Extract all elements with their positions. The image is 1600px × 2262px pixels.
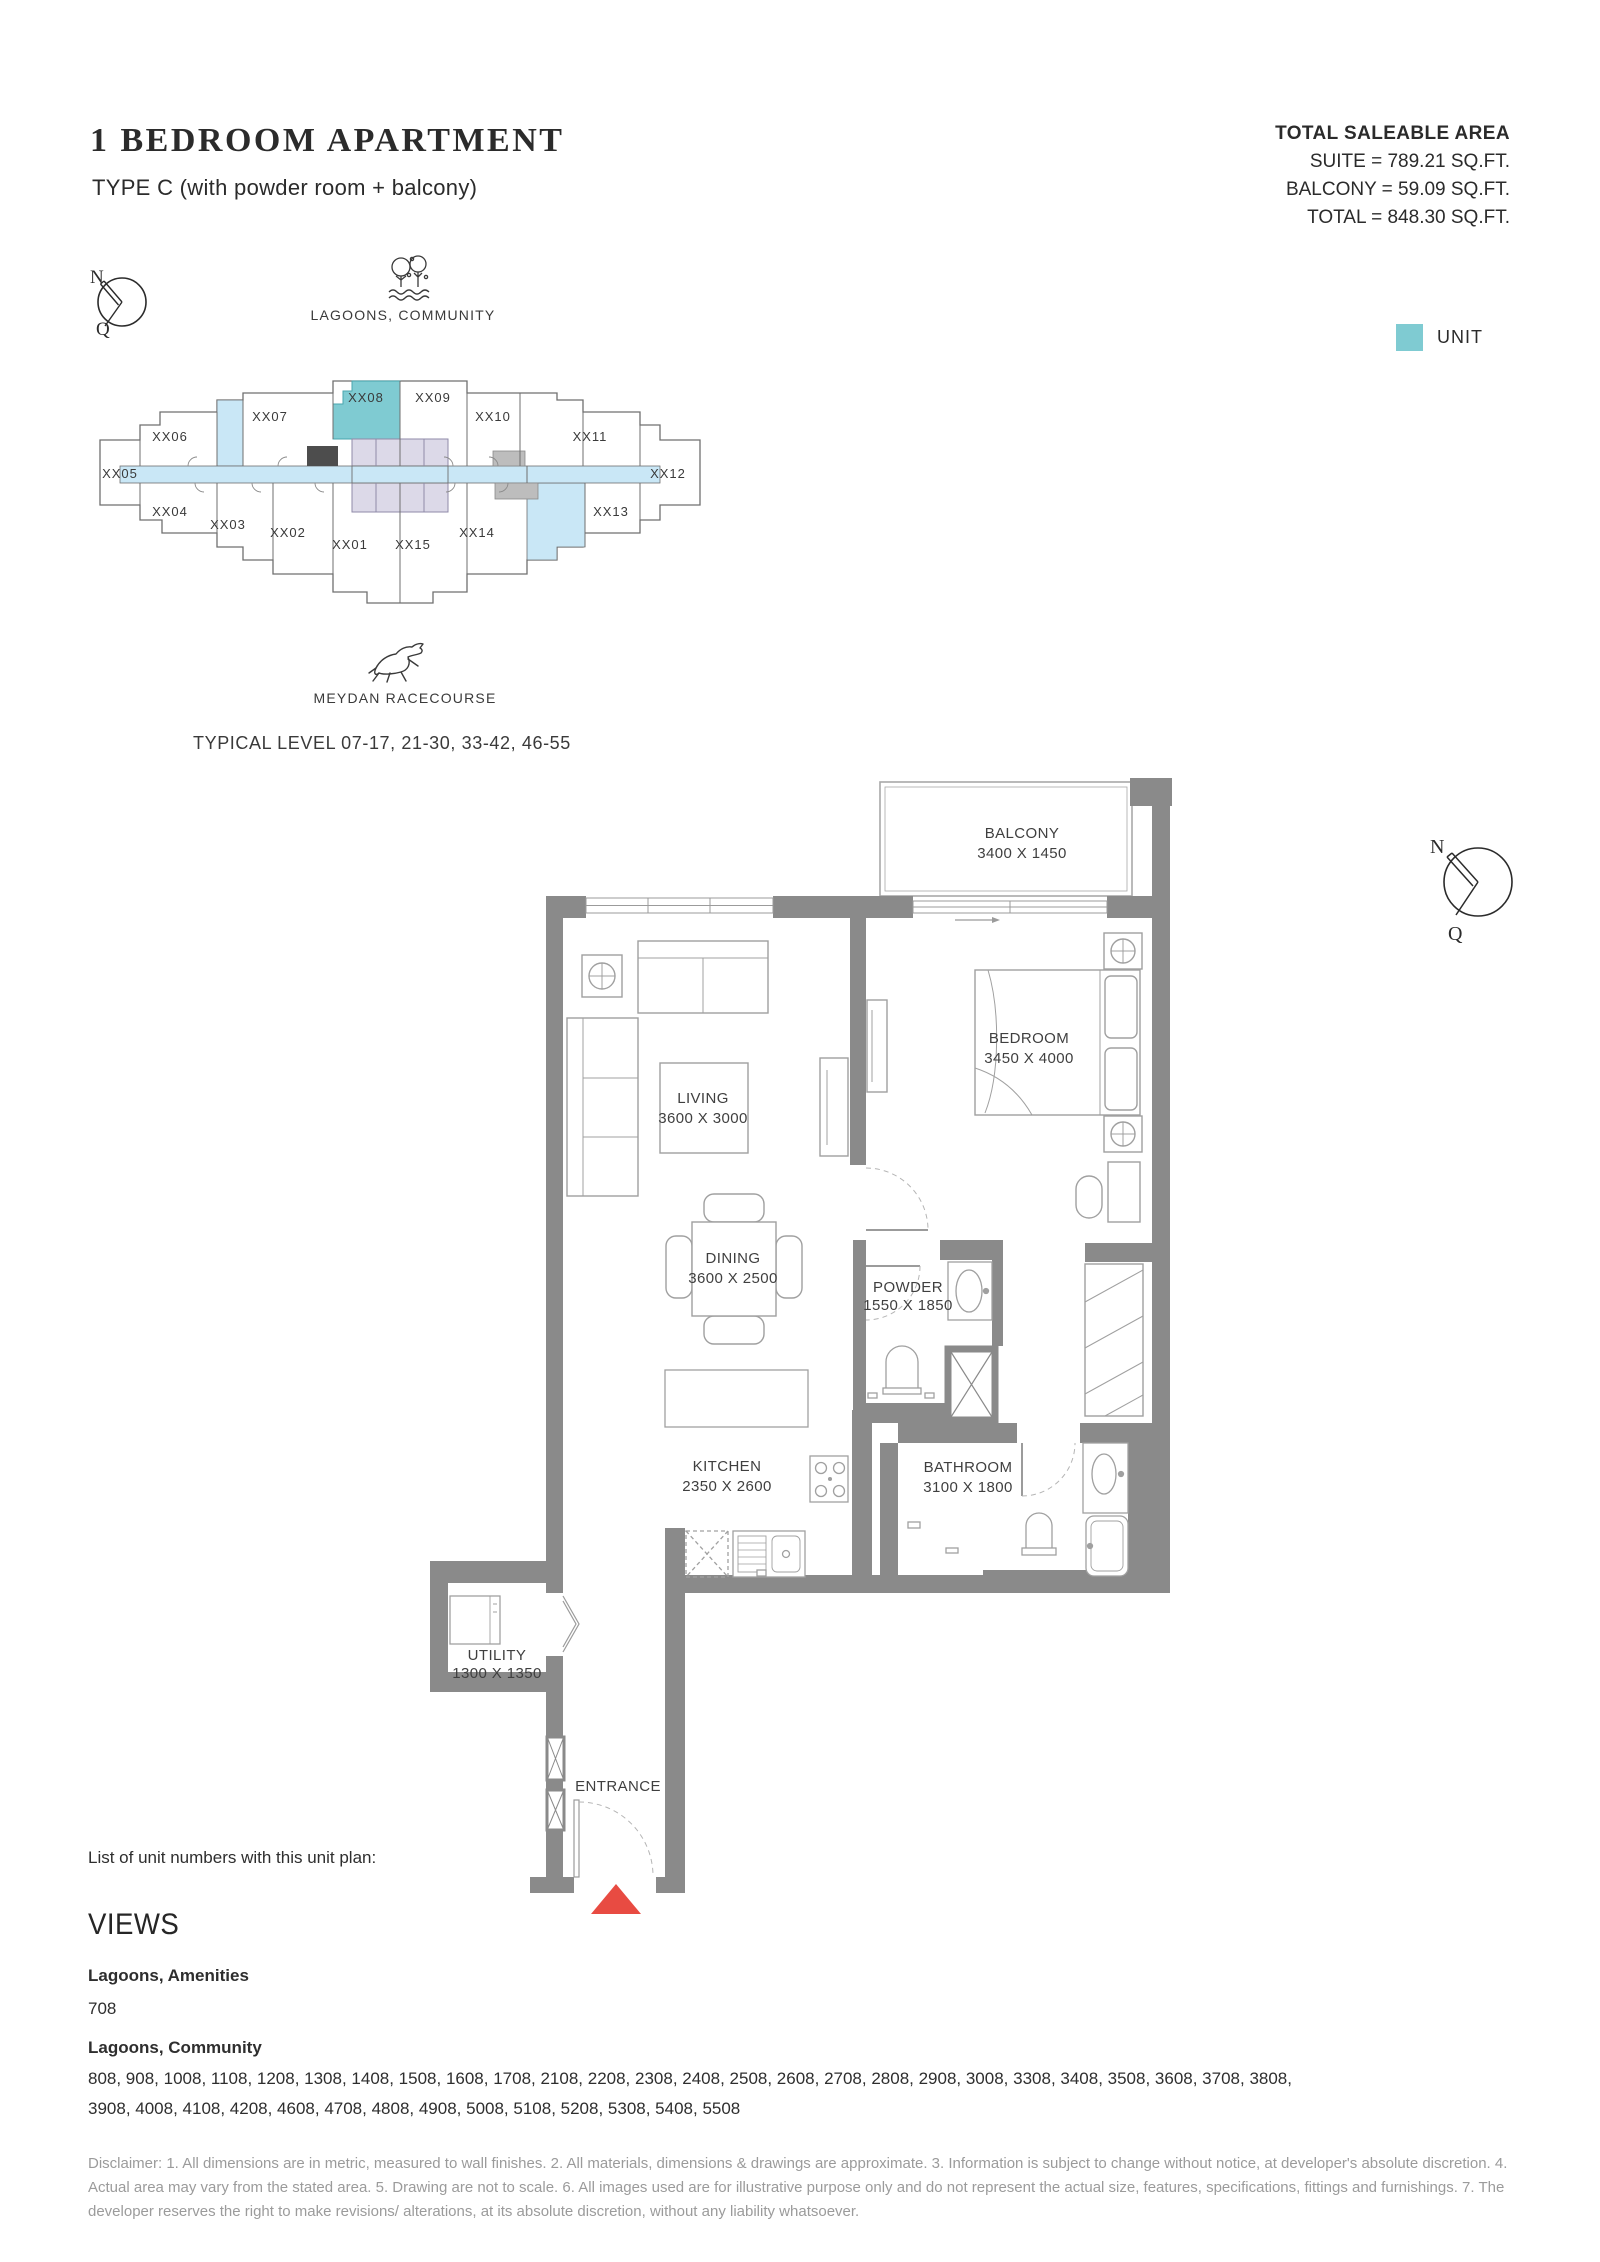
unit-xx01: XX01	[332, 537, 368, 552]
bedroom-furniture	[867, 933, 1143, 1416]
room-bedroom-name: BEDROOM	[989, 1030, 1069, 1047]
context-racecourse-label: MEYDAN RACECOURSE	[290, 690, 520, 706]
bathroom-accessory	[946, 1548, 958, 1553]
total-saleable-area: TOTAL SALEABLE AREA SUITE = 789.21 SQ.FT…	[1090, 120, 1510, 232]
bedroom-door	[866, 1168, 928, 1230]
bedroom-tv-unit	[867, 1000, 887, 1092]
dining-table	[692, 1222, 776, 1316]
room-bathroom-dims: 3100 X 1800	[923, 1479, 1012, 1496]
unit-legend: UNIT	[1396, 324, 1483, 351]
unit-xx14: XX14	[459, 525, 495, 540]
room-utility-name: UTILITY	[468, 1647, 527, 1664]
view-group-title: Lagoons, Community	[88, 2038, 262, 2058]
key-plan-shaft-left	[217, 400, 243, 466]
room-dining-name: DINING	[706, 1250, 761, 1267]
unit-xx13: XX13	[593, 504, 629, 519]
unit-xx03: XX03	[210, 517, 246, 532]
room-kitchen-dims: 2350 X 2600	[682, 1478, 771, 1495]
compass-q-label: Q	[96, 319, 110, 340]
tv-console	[820, 1058, 848, 1156]
compass-north-icon: N Q	[80, 255, 170, 350]
powder-accessory	[868, 1393, 877, 1398]
utility-fixtures	[450, 1596, 500, 1644]
unit-xx09: XX09	[415, 390, 451, 405]
nightstand-lamp-icon	[1104, 1116, 1142, 1152]
compass-north-icon-2: N Q	[1415, 820, 1535, 950]
room-balcony-name: BALCONY	[985, 825, 1060, 842]
unit-xx15: XX15	[395, 537, 431, 552]
stove-icon	[810, 1456, 848, 1502]
unit-xx06: XX06	[152, 429, 188, 444]
key-plan-stair-core	[307, 446, 338, 466]
view-group-units: 808, 908, 1008, 1108, 1208, 1308, 1408, …	[88, 2064, 1328, 2124]
powder-sink	[948, 1262, 992, 1320]
powder-toilet	[883, 1346, 921, 1394]
unit-xx10: XX10	[475, 409, 511, 424]
room-bathroom-name: BATHROOM	[924, 1459, 1013, 1476]
room-balcony-dims: 3400 X 1450	[977, 845, 1066, 862]
dining-chair	[666, 1236, 692, 1298]
room-dining-dims: 3600 X 2500	[688, 1270, 777, 1287]
bathtub	[1086, 1516, 1128, 1576]
racecourse-horse-icon	[366, 640, 428, 686]
entrance-label: ENTRANCE	[575, 1778, 661, 1795]
kitchen-sink	[733, 1531, 805, 1577]
bathroom-door	[1022, 1443, 1075, 1496]
kitchen-counter	[665, 1370, 808, 1427]
floorplan-page: 1 BEDROOM APARTMENT TYPE C (with powder …	[0, 0, 1600, 2262]
entrance-door	[574, 1800, 653, 1877]
dining-chair	[776, 1236, 802, 1298]
dining-furniture	[666, 1194, 802, 1344]
balcony-slider	[913, 901, 1107, 923]
room-utility-dims: 1300 X 1350	[452, 1665, 541, 1682]
unit-xx08: XX08	[348, 390, 384, 405]
view-group-units: 708	[88, 1994, 116, 2024]
page-subtitle: TYPE C (with powder room + balcony)	[92, 175, 477, 201]
ceiling-light-icon	[582, 955, 622, 997]
context-lagoons-label: LAGOONS, COMMUNITY	[288, 307, 518, 323]
compass2-q-label: Q	[1448, 923, 1463, 945]
lagoons-trees-icon	[385, 255, 435, 303]
unit-xx07: XX07	[252, 409, 288, 424]
entrance-marker-icon	[591, 1884, 641, 1914]
unit-list-intro: List of unit numbers with this unit plan…	[88, 1848, 376, 1868]
room-kitchen-name: KITCHEN	[693, 1458, 762, 1475]
utility-door	[563, 1596, 579, 1652]
desk	[1108, 1162, 1140, 1222]
powder-accessory	[925, 1393, 934, 1398]
bathroom-accessory	[908, 1522, 920, 1528]
area-balcony: BALCONY = 59.09 SQ.FT.	[1090, 176, 1510, 204]
coffee-table	[660, 1063, 748, 1153]
sectional-sofa	[567, 1018, 638, 1196]
dining-chair	[704, 1194, 764, 1222]
desk-chair	[1076, 1176, 1102, 1218]
room-powder-name: POWDER	[873, 1279, 943, 1296]
bathroom-toilet	[1022, 1513, 1056, 1555]
area-heading: TOTAL SALEABLE AREA	[1090, 120, 1510, 148]
page-title: 1 BEDROOM APARTMENT	[90, 122, 564, 160]
unit-legend-label: UNIT	[1437, 327, 1483, 348]
unit-xx02: XX02	[270, 525, 306, 540]
area-suite: SUITE = 789.21 SQ.FT.	[1090, 148, 1510, 176]
room-living-dims: 3600 X 3000	[658, 1110, 747, 1127]
dining-chair	[704, 1316, 764, 1344]
unit-xx04: XX04	[152, 504, 188, 519]
unit-xx12: XX12	[650, 466, 686, 481]
sofa	[638, 941, 768, 1013]
key-plan: XX01 XX02 XX03 XX04 XX05 XX06 XX07 XX08 …	[90, 370, 710, 610]
room-living-name: LIVING	[677, 1090, 729, 1107]
living-furniture	[567, 941, 848, 1196]
washing-machine	[450, 1596, 500, 1644]
floor-plan: BALCONY 3400 X 1450 BEDROOM 3450 X 4000 …	[420, 740, 1190, 1930]
room-bedroom-dims: 3450 X 4000	[984, 1050, 1073, 1067]
area-total: TOTAL = 848.30 SQ.FT.	[1090, 204, 1510, 232]
compass2-n-label: N	[1430, 836, 1444, 858]
walls	[430, 778, 1172, 1893]
compass-n-label: N	[90, 267, 104, 288]
view-group-title: Lagoons, Amenities	[88, 1966, 249, 1986]
fridge	[686, 1531, 728, 1577]
wardrobe	[1085, 1264, 1143, 1416]
room-powder-dims: 1550 X 1850	[863, 1297, 952, 1314]
views-heading: VIEWS	[88, 1908, 179, 1942]
unit-xx11: XX11	[573, 429, 608, 444]
disclaimer-text: Disclaimer: 1. All dimensions are in met…	[88, 2152, 1540, 2224]
unit-legend-swatch	[1396, 324, 1423, 351]
living-window	[586, 898, 773, 913]
bathroom-sink	[1083, 1443, 1128, 1513]
nightstand-lamp-icon	[1104, 933, 1142, 969]
unit-xx05: XX05	[102, 466, 138, 481]
